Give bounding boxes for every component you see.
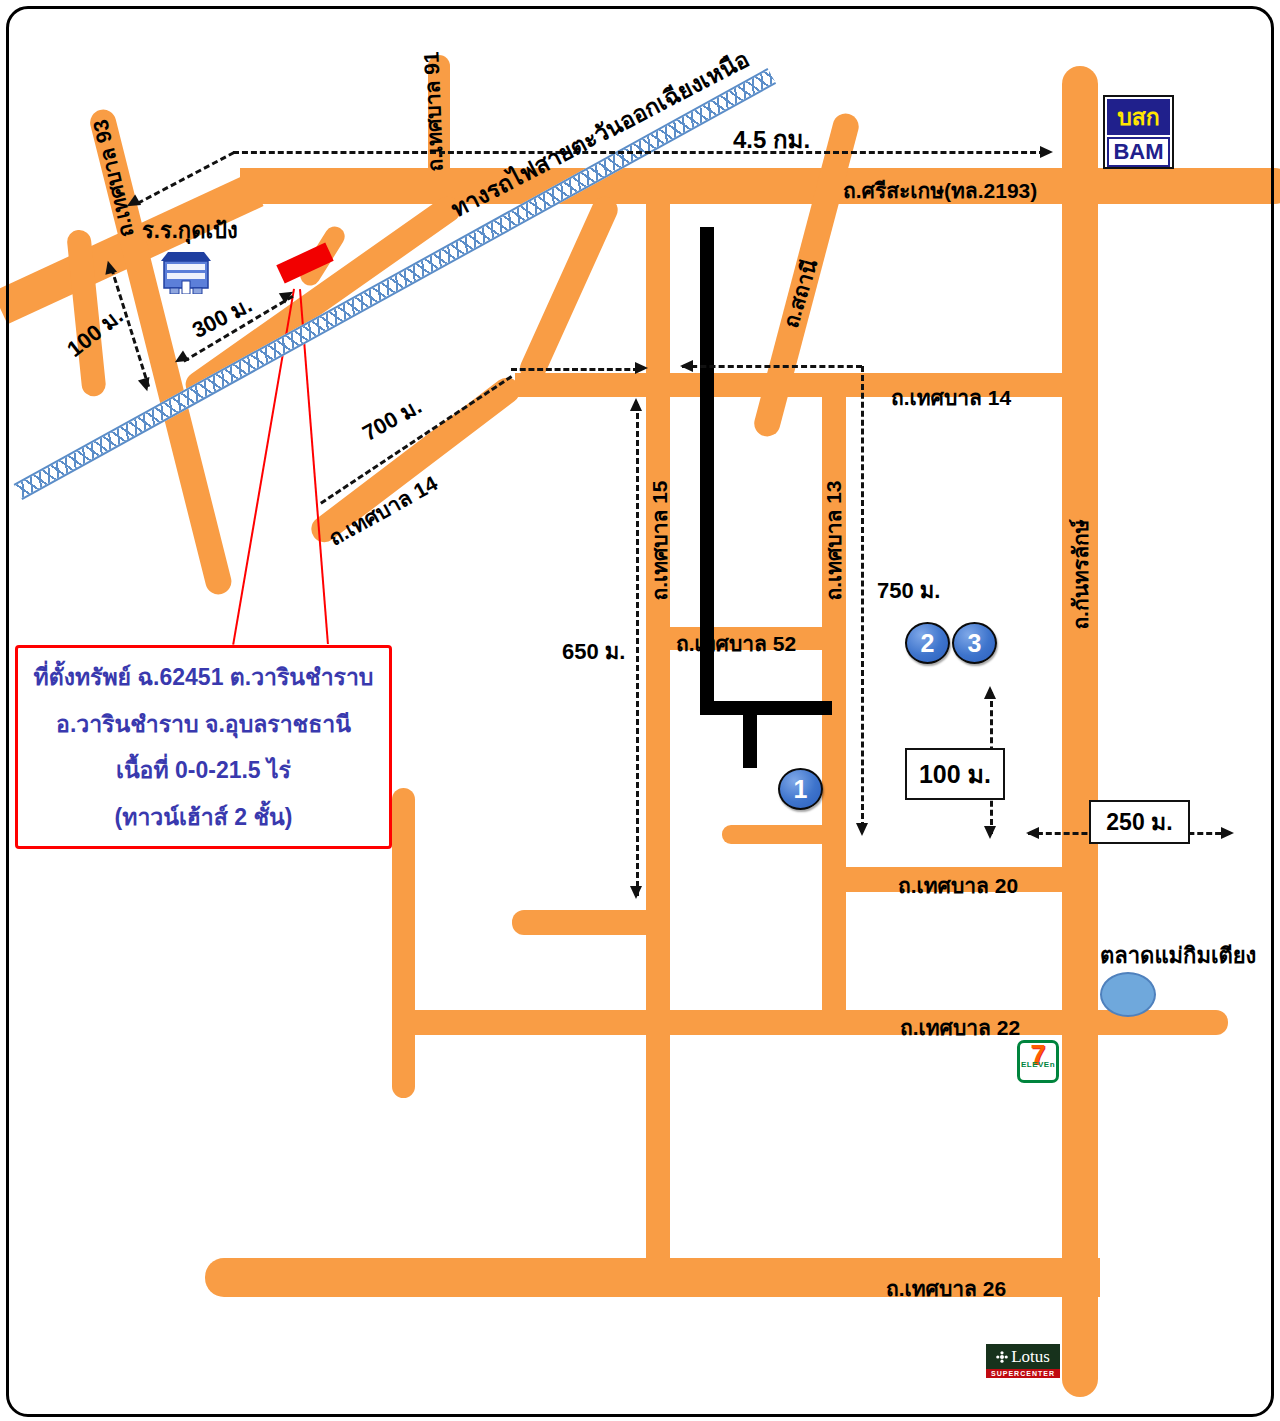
bam-logo-thai: บสก: [1107, 99, 1170, 135]
label-tesaban-22: ถ.เทศบาล 22: [900, 1011, 1020, 1044]
property-info-box: ที่ตั้งทรัพย์ ฉ.62451 ต.วารินชำราบ อ.วาร…: [15, 645, 392, 849]
label-tesaban-52: ถ.เทศบาล 52: [676, 627, 796, 660]
arrowhead-icon: [1040, 146, 1053, 158]
marker-1: 1: [778, 768, 823, 810]
dash-750m-horizontal: [682, 365, 862, 368]
road-sisaket: [240, 168, 1280, 204]
label-tesaban-14-east: ถ.เทศบาล 14: [891, 381, 1011, 414]
lotus-logo-top: Lotus: [986, 1344, 1060, 1369]
lotus-flower-icon: [996, 1351, 1008, 1363]
route-horizontal: [700, 701, 832, 715]
road-ne-connector: [516, 193, 622, 386]
label-tesaban-15: ถ.เทศบาล 15: [643, 471, 676, 611]
road-stub-site: [722, 825, 832, 844]
dash-45km: [233, 151, 1045, 154]
label-sisaket: ถ.ศรีสะเกษ(ทล.2193): [843, 174, 1037, 207]
arrowhead-icon: [680, 360, 693, 372]
dash-750m-vertical: [861, 366, 864, 828]
box-100m: 100 ม.: [905, 748, 1005, 800]
property-line-3: เนื้อที่ 0-0-21.5 ไร่: [116, 752, 291, 788]
arrowhead-icon: [984, 826, 996, 839]
bam-logo-latin: BAM: [1107, 137, 1170, 167]
marker-2: 2: [905, 622, 950, 664]
location-map: ถ.ศรีสะเกษ(ทล.2193) ถ.เทศบาล 91 ถ.เทศบาล…: [0, 0, 1280, 1421]
marker-3-number: 3: [968, 629, 982, 658]
label-sathani: ถ.สถานี: [771, 246, 829, 342]
label-tesaban-26: ถ.เทศบาล 26: [886, 1272, 1006, 1305]
label-tesaban-20: ถ.เทศบาล 20: [898, 869, 1018, 902]
dash-700m-horizontal: [511, 368, 639, 371]
market-ellipse: [1100, 972, 1156, 1017]
road-tesaban-15: [646, 172, 670, 1262]
label-kantharalak: ถ.กันทรลักษ์: [1064, 495, 1097, 655]
label-650m: 650 ม.: [562, 634, 625, 669]
marker-3: 3: [952, 622, 997, 664]
property-line-4: (ทาวน์เฮ้าส์ 2 ชั้น): [115, 799, 293, 835]
label-tesaban-13: ถ.เทศบาล 13: [817, 471, 850, 611]
seven-eleven-text: ELEVEn: [1020, 1061, 1056, 1069]
box-250m-value: 250 ม.: [1106, 804, 1172, 840]
box-100m-value: 100 ม.: [919, 754, 991, 794]
arrowhead-icon: [635, 362, 648, 374]
lotus-logo-sub: SUPERCENTER: [986, 1369, 1060, 1378]
dash-650m: [636, 404, 639, 896]
arrowhead-icon: [138, 377, 153, 393]
label-market: ตลาดแม่กิมเตียง: [1100, 938, 1256, 973]
lotus-logo: Lotus SUPERCENTER: [986, 1344, 1060, 1378]
property-line-1: ที่ตั้งทรัพย์ ฉ.62451 ต.วารินชำราบ: [34, 659, 374, 695]
route-stub: [743, 715, 757, 768]
label-tesaban-91: ถ.เทศบาล 91: [414, 46, 452, 177]
marker-1-number: 1: [794, 775, 808, 804]
label-tesaban-93: ถ.เทศบาล 93: [82, 111, 143, 245]
marker-2-number: 2: [921, 629, 935, 658]
road-stub-soi: [512, 910, 652, 935]
road-tesaban-22: [392, 1010, 1228, 1035]
arrowhead-icon: [1026, 827, 1039, 839]
arrowhead-icon: [630, 398, 642, 411]
label-750m: 750 ม.: [877, 573, 940, 608]
arrowhead-icon: [630, 886, 642, 899]
arrowhead-icon: [856, 823, 868, 836]
bam-logo: บสก BAM: [1103, 95, 1174, 169]
school-building-icon: [158, 250, 214, 294]
label-school: ร.ร.กุดเป้ง: [142, 213, 238, 248]
arrowhead-icon: [1221, 827, 1234, 839]
seven-eleven-icon: 7 ELEVEn: [1017, 1040, 1059, 1083]
arrowhead-icon: [984, 686, 996, 699]
road-kantharalak: [1062, 66, 1098, 1397]
box-250m: 250 ม.: [1089, 800, 1190, 844]
road-unnamed-vertical: [392, 788, 415, 1098]
label-45km: 4.5 กม.: [733, 120, 810, 159]
property-line-2: อ.วารินชำราบ จ.อุบลราชธานี: [56, 706, 351, 742]
lotus-logo-text: Lotus: [1011, 1347, 1050, 1367]
